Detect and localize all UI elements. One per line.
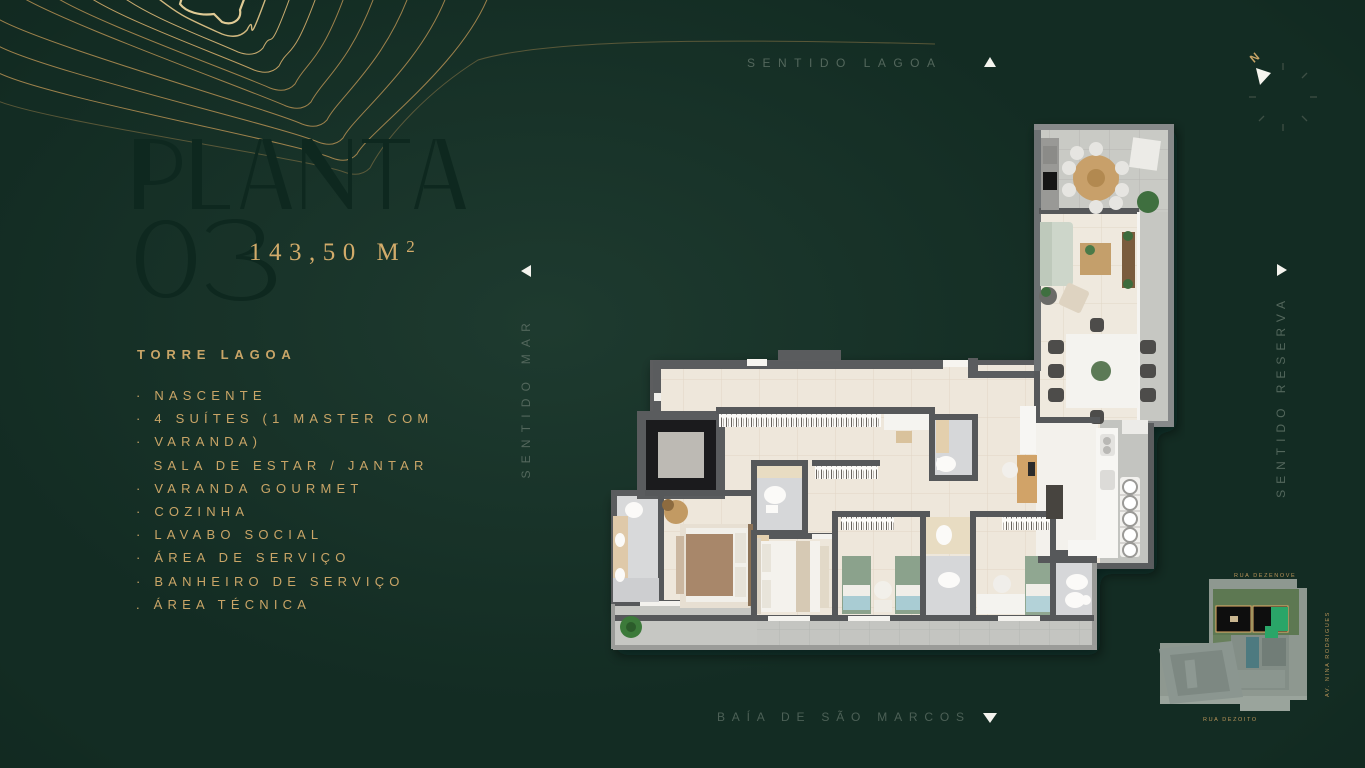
svg-text:RUA DEZOITO: RUA DEZOITO bbox=[1203, 717, 1258, 723]
svg-text:RUA DEZENOVE: RUA DEZENOVE bbox=[1234, 573, 1296, 579]
svg-text:AV. NINA RODRIGUES: AV. NINA RODRIGUES bbox=[1325, 611, 1331, 697]
svg-text:N: N bbox=[1248, 51, 1262, 66]
